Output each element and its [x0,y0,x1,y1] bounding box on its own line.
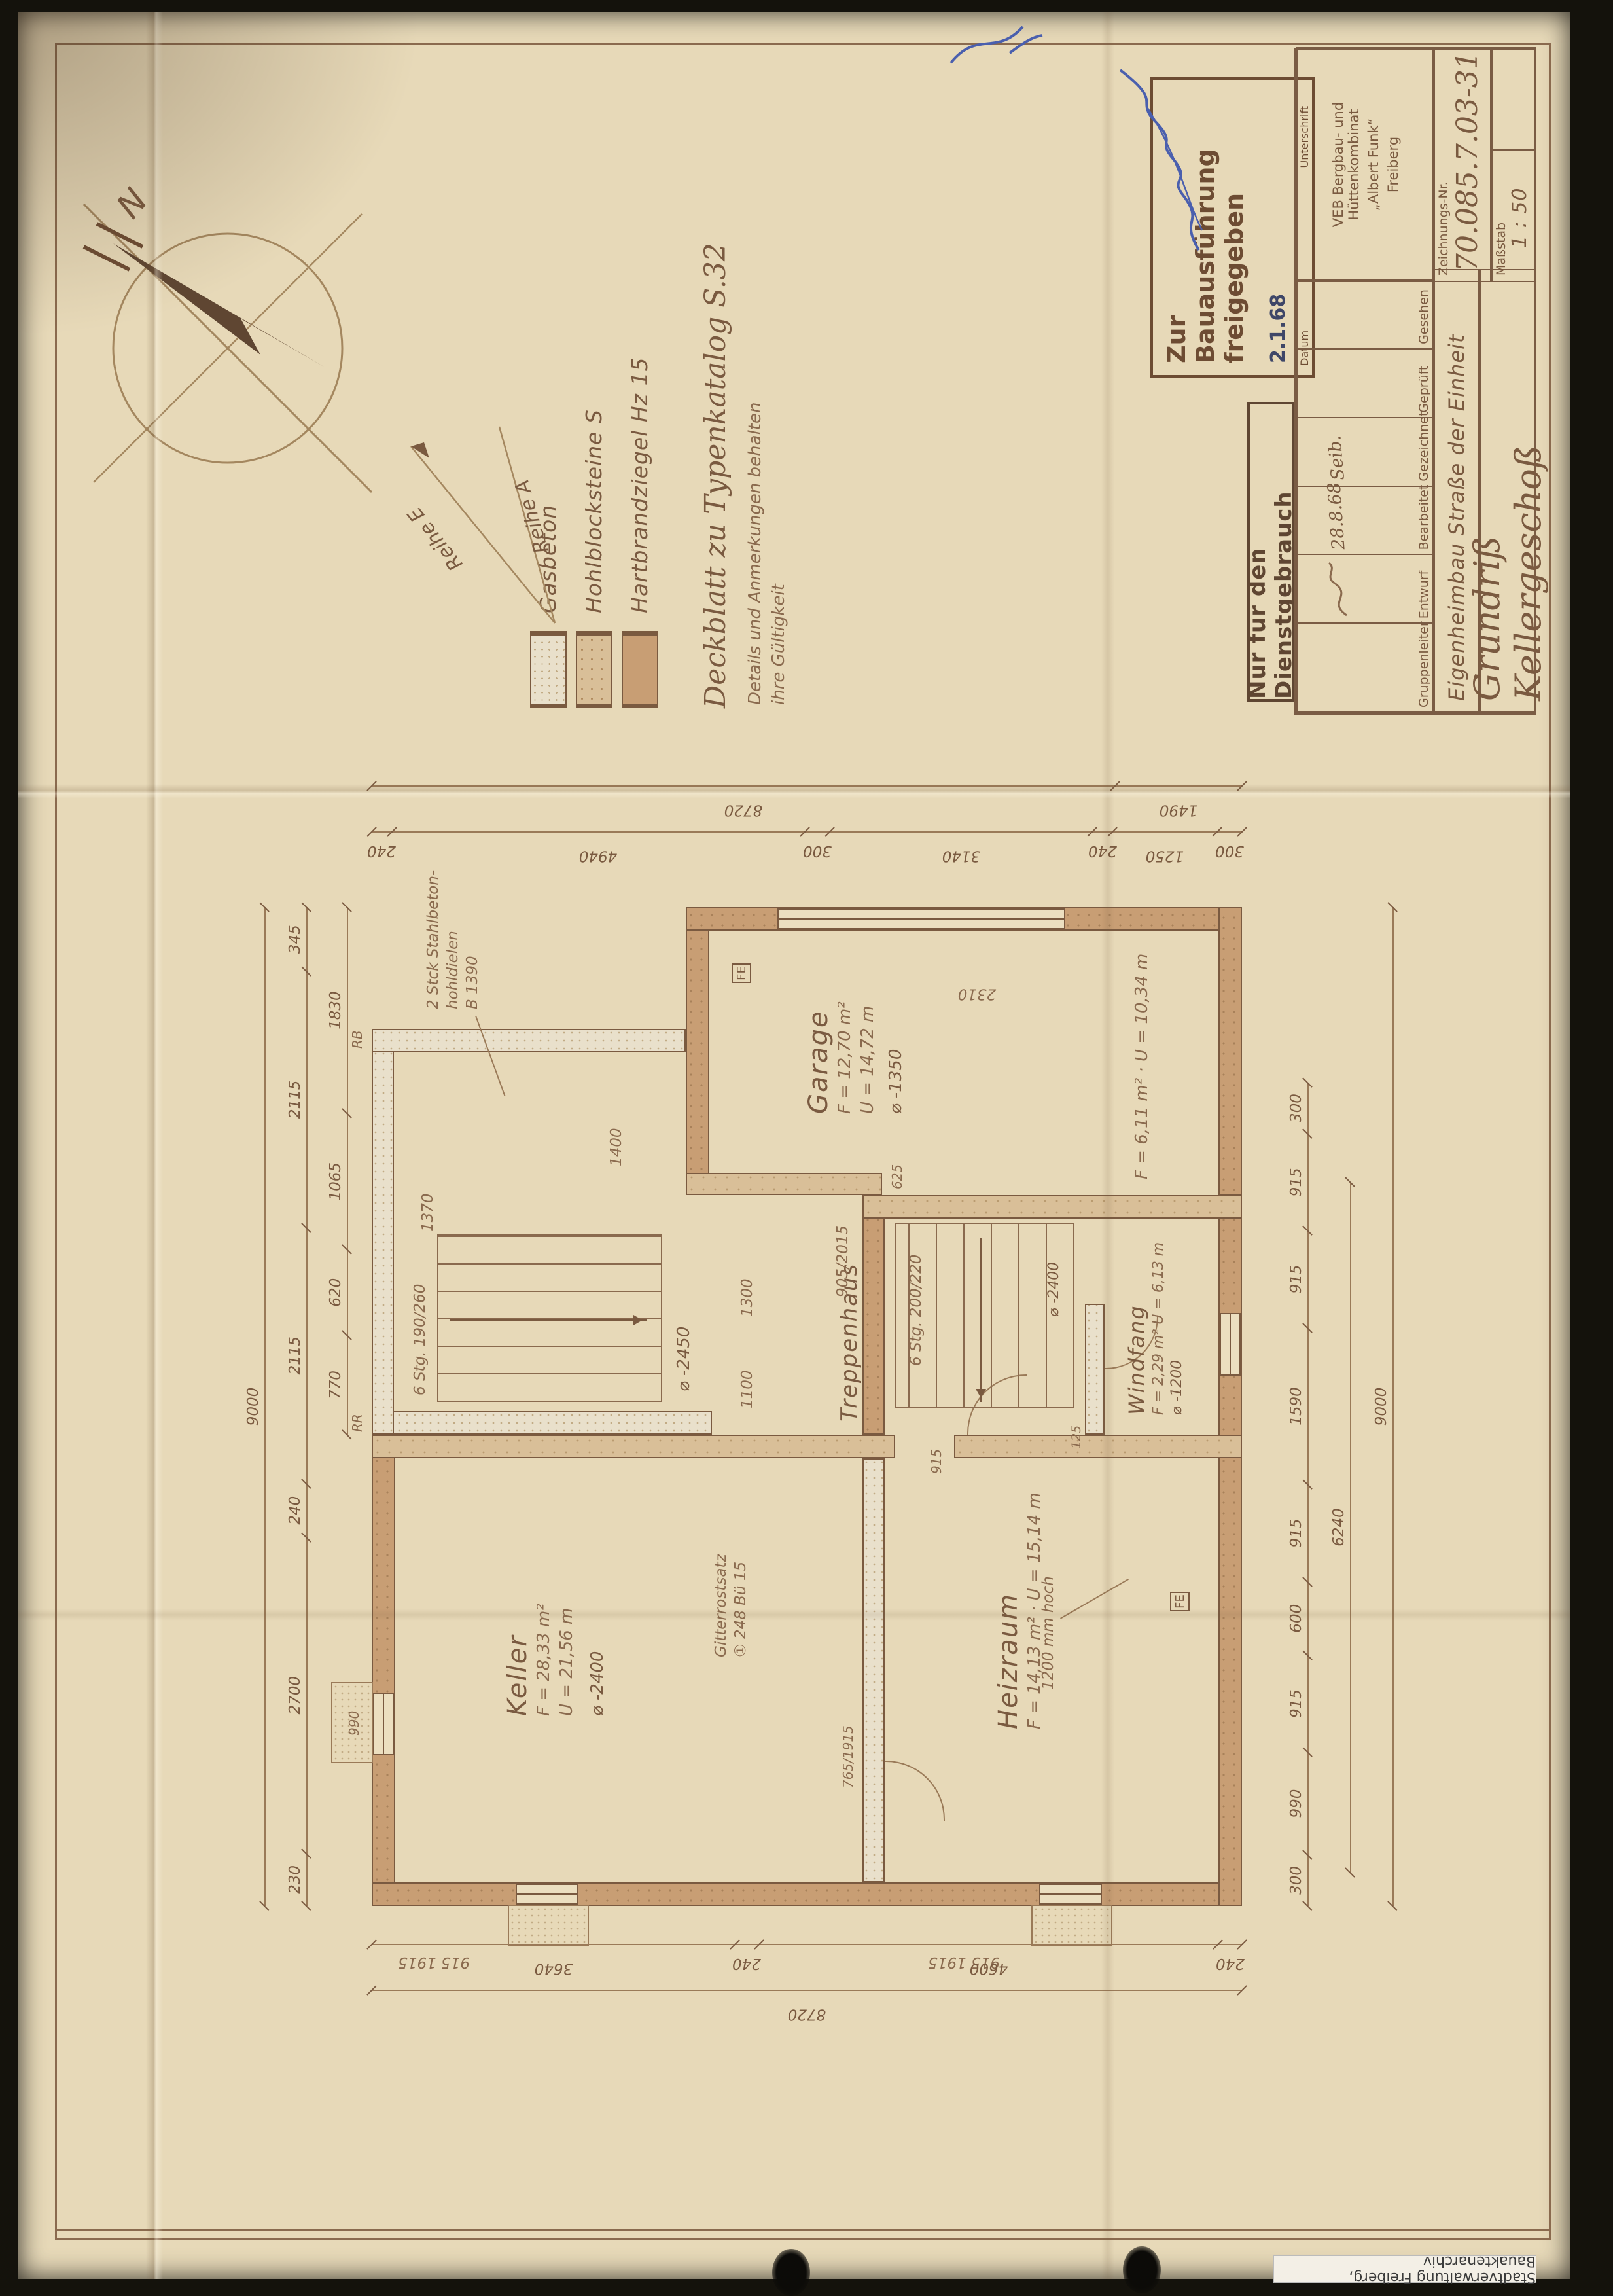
dim-r2-sub: 1490 [1160,801,1198,818]
note-hohldielen-line2: hohldielen [444,870,463,1009]
treppenhaus-perimeter-value: U = 10,34 m [1132,954,1152,1062]
note-grate-line1: Gitterrostsatz [712,1554,732,1657]
title-block-empty-cell [1490,47,1536,151]
paper-sheet: FE FE Keller F = 28,33 m² U = 21,56 m ⌀ … [18,12,1570,2279]
interior-stair-arrow [980,1238,982,1402]
dim-625: 625 [889,1164,906,1189]
room-keller-perimeter: U = 21,56 m [556,1604,578,1716]
dim-b1-6: 915 [1288,1230,1307,1327]
dim-t1-4: 2115 [287,971,306,1227]
wall-heizraum-treppenhaus [954,1435,1242,1458]
dim-125: 125 [1069,1426,1085,1449]
sig-role-2: Bearbeitet [1417,485,1431,550]
room-heizraum-name: Heizraum [993,1492,1023,1729]
note-rr: RR [349,1414,366,1432]
legend-note-line2: ihre Gültigkeit [768,584,790,705]
wall-keller-east [372,1435,895,1458]
wall-garage-west-upper [686,1173,882,1195]
scale-label: Maßstab [1494,223,1508,276]
dim-ti-3: 1830 [327,907,347,1113]
dim-b1-1: 990 [1288,1752,1307,1855]
dim-r1-5: 1250 [1146,847,1184,864]
dim-l1-0: 3640 [534,1960,573,1977]
dim-t1-0: 230 [287,1854,306,1906]
room-treppenhaus-area: F = 6,11 m² · U = 10,34 m [1131,905,1154,1179]
room-garage-area: F = 12,70 m² [834,1001,857,1114]
dim-l1-1: 240 [733,1955,762,1972]
note-stair-ext: 6 Stg. 190/260 [411,1284,431,1395]
dim-b1-0: 300 [1288,1855,1307,1906]
signature-stroke [1120,70,1199,250]
sig-entry-2: 28.8.68 [1324,482,1349,550]
room-windfang: Windfang F = 2,29 m² U = 6,13 m ⌀ -1200 [1124,1242,1185,1415]
lightwell-heizraum-west [1031,1905,1112,1946]
dim-r1-2: 300 [803,842,832,859]
punch-hole-2 [1123,2246,1161,2293]
dim-t1-1: 2700 [287,1537,306,1854]
entry-door-windfang [1220,1313,1241,1376]
scale-cell: Maßstab 1 : 50 [1490,149,1536,282]
classification-stamp: Nur für den Dienstgebrauch [1247,402,1294,702]
north-tick-2 [97,224,143,247]
dim-r1-1: 4940 [579,847,618,864]
wall-court-east [372,1029,686,1052]
sig-col-4: Geprüft [1298,348,1434,417]
dim-b1-7: 915 [1288,1134,1307,1230]
wall-garage-south [1218,907,1242,1195]
signature-blue [1101,60,1218,257]
windfang-perimeter-value: U = 6,13 m [1150,1242,1167,1325]
dim-b1-8: 300 [1288,1083,1307,1134]
legend-note-line1: Details und Anmerkungen behalten [745,403,767,705]
project-text: Eigenheimbau Straße der Einheit [1444,334,1469,701]
fe-label: FE [735,966,749,980]
note-hohldielen-line3: B 1390 [463,870,483,1009]
dim-b2-0: 6240 [1330,1182,1350,1873]
legend-swatch-hartbrand [622,631,658,708]
signature-stroke-2 [1146,106,1202,230]
archive-label: Stadtverwaltung Freiberg, Bauaktenarchiv [1273,2255,1536,2283]
title-cell: Grundriß Kellergeschoß [1478,269,1536,713]
wall-court-west [372,1411,712,1435]
sig-role-3: Gezeichnet [1417,412,1431,482]
legend-note-title: Deckblatt zu Typenkatalog S.32 [699,243,732,708]
dim-1370: 1370 [419,1193,438,1232]
fe-marker-heizraum: FE [1170,1592,1190,1611]
room-garage: Garage F = 12,70 m² U = 14,72 m ⌀ -1350 [804,1001,906,1114]
sig-col-3: Gezeichnet Seib. [1298,417,1434,486]
scale-value: 1 : 50 [1508,188,1531,248]
dim-1100: 1100 [738,1370,758,1408]
dim-chain-top-inner: 770 620 1065 1830 [321,907,348,1435]
room-keller-area: F = 28,33 m² [533,1604,556,1716]
wall-court-north [372,1029,394,1435]
sig-role-4: Geprüft [1417,366,1431,413]
dim-2310: 2310 [958,984,997,1003]
door-mark-0-h: 2015 [834,1225,851,1264]
dim-chain-top-2: 9000 [238,907,266,1906]
sheet-title: Grundriß Kellergeschoß [1466,270,1549,701]
dim-915: 915 [928,1449,945,1474]
wall-treppenhaus-east [862,1195,1242,1219]
dim-1400: 1400 [607,1128,627,1166]
sig-col-1: Entwurf [1298,554,1434,622]
blue-pen-mark [944,17,1049,76]
room-garage-name: Garage [804,1001,834,1114]
archive-label-text: Stadtverwaltung Freiberg, Bauaktenarchiv [1274,2253,1536,2286]
door-mark-3-h: 1915 [840,1725,856,1759]
dim-t2-0: 9000 [245,907,264,1906]
dim-l1-3: 240 [1216,1955,1245,1972]
sig-col-0: Gruppenleiter [1298,622,1434,711]
dim-ti-2: 1065 [327,1113,347,1249]
dim-r1-3: 3140 [942,847,980,864]
note-stair-int: 6 Stg. 200/220 [907,1255,927,1366]
dim-chain-right-1: 240 4940 300 3140 240 1250 300 [372,831,1242,859]
exterior-stair-level: ⌀ -2450 [674,1327,694,1391]
note-hohldielen: 2 Stck Stahlbeton- hohldielen B 1390 [424,870,483,1009]
sig-col-5: Gesehen [1298,281,1434,348]
compass-needle [113,243,326,368]
door-mark-0-w: 905 [834,1268,851,1297]
landscape-drawing: FE FE Keller F = 28,33 m² U = 21,56 m ⌀ … [18,12,1570,2279]
garage-gate [777,908,1065,929]
reihe-marker: Reihe E Reihe A [359,387,594,662]
room-windfang-level: ⌀ -1200 [1169,1242,1185,1415]
dim-chain-bottom-1: 300 990 915 600 915 1590 915 915 300 [1281,1083,1309,1906]
dim-t1-2: 240 [287,1484,306,1537]
note-rb: RB [349,1030,366,1049]
dim-chain-top-1: 230 2700 240 2115 2115 345 [280,907,308,1906]
window-keller-north [373,1693,394,1755]
room-windfang-name: Windfang [1124,1242,1149,1415]
wall-west [372,1882,1242,1906]
stamp-line3: freigegeben [1220,92,1249,363]
door-mark-3: 765/1915 [840,1725,857,1788]
sig-role-1: Entwurf [1417,571,1431,619]
dim-b1-2: 915 [1288,1655,1307,1752]
windfang-area-value: F = 2,29 m² [1150,1329,1167,1415]
room-garage-level: ⌀ -1350 [886,1001,906,1114]
exterior-stair-arrow [450,1319,647,1321]
dim-chain-left-1: 3640 240 4600 240 [372,1944,1242,1971]
approval-stamp: Zur Bauausführung freigegeben 2.1.68 Dat… [1150,77,1315,378]
sig-entry-3: Seib. [1324,434,1349,480]
company-cell: VEB Bergbau- und Hüttenkombinat „Albert … [1296,47,1435,282]
dim-ti-0: 770 [327,1335,347,1435]
drawing-number-value: 70.085.7.03-31 [1451,51,1484,272]
company-line3: Freiberg [1385,137,1401,192]
exterior-stair [437,1234,662,1402]
dim-t1-3: 2115 [287,1228,306,1484]
compass-north-label: N [109,181,156,226]
note-hohldielen-line1: 2 Stck Stahlbeton- [424,870,444,1009]
stamp-date: 2.1.68 [1267,294,1290,363]
legend-label-hartbrand: Hartbrandziegel Hz 15 [627,357,652,613]
sig-role-5: Gesehen [1417,289,1431,344]
dim-b3-0: 9000 [1373,907,1392,1906]
room-keller-level: ⌀ -2400 [588,1604,607,1716]
reihe-e-label: Reihe E [404,503,468,575]
dim-b1-3: 600 [1288,1582,1307,1655]
sig-role-0: Gruppenleiter [1417,621,1431,708]
dim-chain-bottom-2: 6240 [1324,1182,1351,1873]
dim-l1-2: 4600 [969,1960,1008,1977]
note-wall-height: 1200 mm hoch [1039,1576,1059,1690]
dim-b1-4: 915 [1288,1484,1307,1581]
dim-r2-total: 8720 [724,801,763,818]
signature-table: Gruppenleiter Entwurf Bearbeitet 28.8.68… [1296,279,1435,713]
dim-chain-right-2: 8720 1490 [372,785,1242,813]
lightwell-keller-west [508,1905,589,1946]
room-keller: Keller F = 28,33 m² U = 21,56 m ⌀ -2400 [503,1604,607,1716]
punch-hole-1 [772,2249,810,2296]
dim-chain-left-2: 8720 [372,1990,1242,2017]
drawing-number-cell: Zeichnungs-Nr. 70.085.7.03-31 [1432,47,1493,282]
dim-chain-bottom-3: 9000 [1366,907,1394,1906]
wall-windfang-partition [1085,1304,1105,1435]
company-line1: VEB Bergbau- und Hüttenkombinat [1330,48,1362,281]
dim-990: 990 [346,1711,363,1736]
door-mark-0: 905/2015 [834,1225,853,1297]
reihe-a-label: Reihe A [510,477,553,556]
dim-r1-6: 300 [1215,842,1244,859]
dim-l2-0: 8720 [788,2005,826,2022]
fe-label-2: FE [1173,1594,1187,1609]
treppenhaus-area-value: F = 6,11 m² [1132,1078,1152,1179]
room-windfang-stats: F = 2,29 m² U = 6,13 m [1149,1242,1169,1415]
drawing-number-label: Zeichnungs-Nr. [1436,181,1451,276]
company-line2: „Albert Funk“ [1366,118,1381,211]
wall-treppenhaus-north [862,1195,885,1435]
note-grate: Gitterrostsatz ① 248 Bü 15 [712,1554,751,1657]
scanned-blueprint-page: FE FE Keller F = 28,33 m² U = 21,56 m ⌀ … [0,0,1613,2296]
title-block: Gruppenleiter Entwurf Bearbeitet 28.8.68… [1294,48,1536,715]
door-mark-3-w: 765 [840,1763,856,1788]
wall-keller-heizraum-partition [862,1458,885,1882]
wall-garage-north [686,907,709,1195]
sheet-frame-inner-line [55,2229,1551,2231]
wall-keller-north [372,1435,395,1906]
dim-b1-5: 1590 [1288,1328,1307,1485]
dim-ti-1: 620 [327,1249,347,1335]
room-garage-perimeter: U = 14,72 m [857,1001,879,1114]
room-treppenhaus-stats: F = 6,11 m² · U = 10,34 m [1131,905,1154,1179]
window-heizraum-west [1039,1884,1102,1905]
treppenhaus-level: ⌀ -2400 [1046,1262,1062,1317]
room-heizraum: Heizraum F = 14,13 m² · U = 15,14 m [993,1492,1046,1729]
sig-col-2: Bearbeitet 28.8.68 [1298,486,1434,554]
classification-text: Nur für den Dienstgebrauch [1245,404,1297,699]
dim-t1-5: 345 [287,907,306,971]
note-grate-line2: ① 248 Bü 15 [732,1554,751,1657]
room-keller-name: Keller [503,1604,533,1716]
dim-1300: 1300 [738,1278,758,1317]
window-keller-west [516,1884,578,1905]
fe-marker-garage: FE [732,963,751,983]
